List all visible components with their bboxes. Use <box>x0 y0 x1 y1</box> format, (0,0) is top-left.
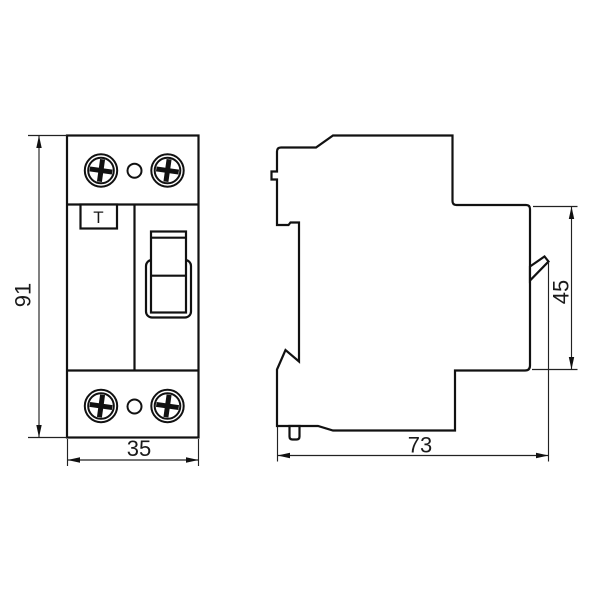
terminal-screw-top-left <box>85 154 117 186</box>
arrowhead-down <box>36 425 41 438</box>
dimension-label-91: 91 <box>11 283 36 307</box>
toggle-switch <box>146 232 191 318</box>
dimension-rail-45: 45 <box>532 207 578 370</box>
drawing-canvas: T 91 35 73 <box>0 0 600 600</box>
terminal-screw-bottom-left <box>85 390 117 422</box>
terminal-screw-bottom-right <box>151 390 183 422</box>
side-view <box>272 136 549 440</box>
front-view: T <box>67 136 199 438</box>
test-button-label: T <box>93 208 103 227</box>
dimension-width-35: 35 <box>68 436 199 466</box>
arrowhead-left <box>278 453 291 458</box>
indicator-window-bottom <box>128 400 142 414</box>
technical-drawing: T 91 35 73 <box>0 0 600 600</box>
test-button: T <box>81 205 118 229</box>
din-clip-tab <box>290 426 300 440</box>
dimension-label-73: 73 <box>408 433 432 458</box>
dimension-label-45: 45 <box>549 280 574 304</box>
arrowhead-up <box>36 136 41 149</box>
terminal-screw-top-right <box>151 154 183 186</box>
mounting-hook <box>530 257 549 281</box>
indicator-window-top <box>128 164 142 178</box>
side-body-outline <box>272 136 531 431</box>
arrowhead-right <box>186 457 199 462</box>
dimension-label-35: 35 <box>127 436 151 461</box>
arrowhead-right <box>536 453 549 458</box>
arrowhead-down <box>569 357 574 370</box>
arrowhead-up <box>569 207 574 220</box>
toggle-lever <box>151 232 186 313</box>
arrowhead-left <box>68 457 81 462</box>
dimension-height-91: 91 <box>11 136 68 438</box>
